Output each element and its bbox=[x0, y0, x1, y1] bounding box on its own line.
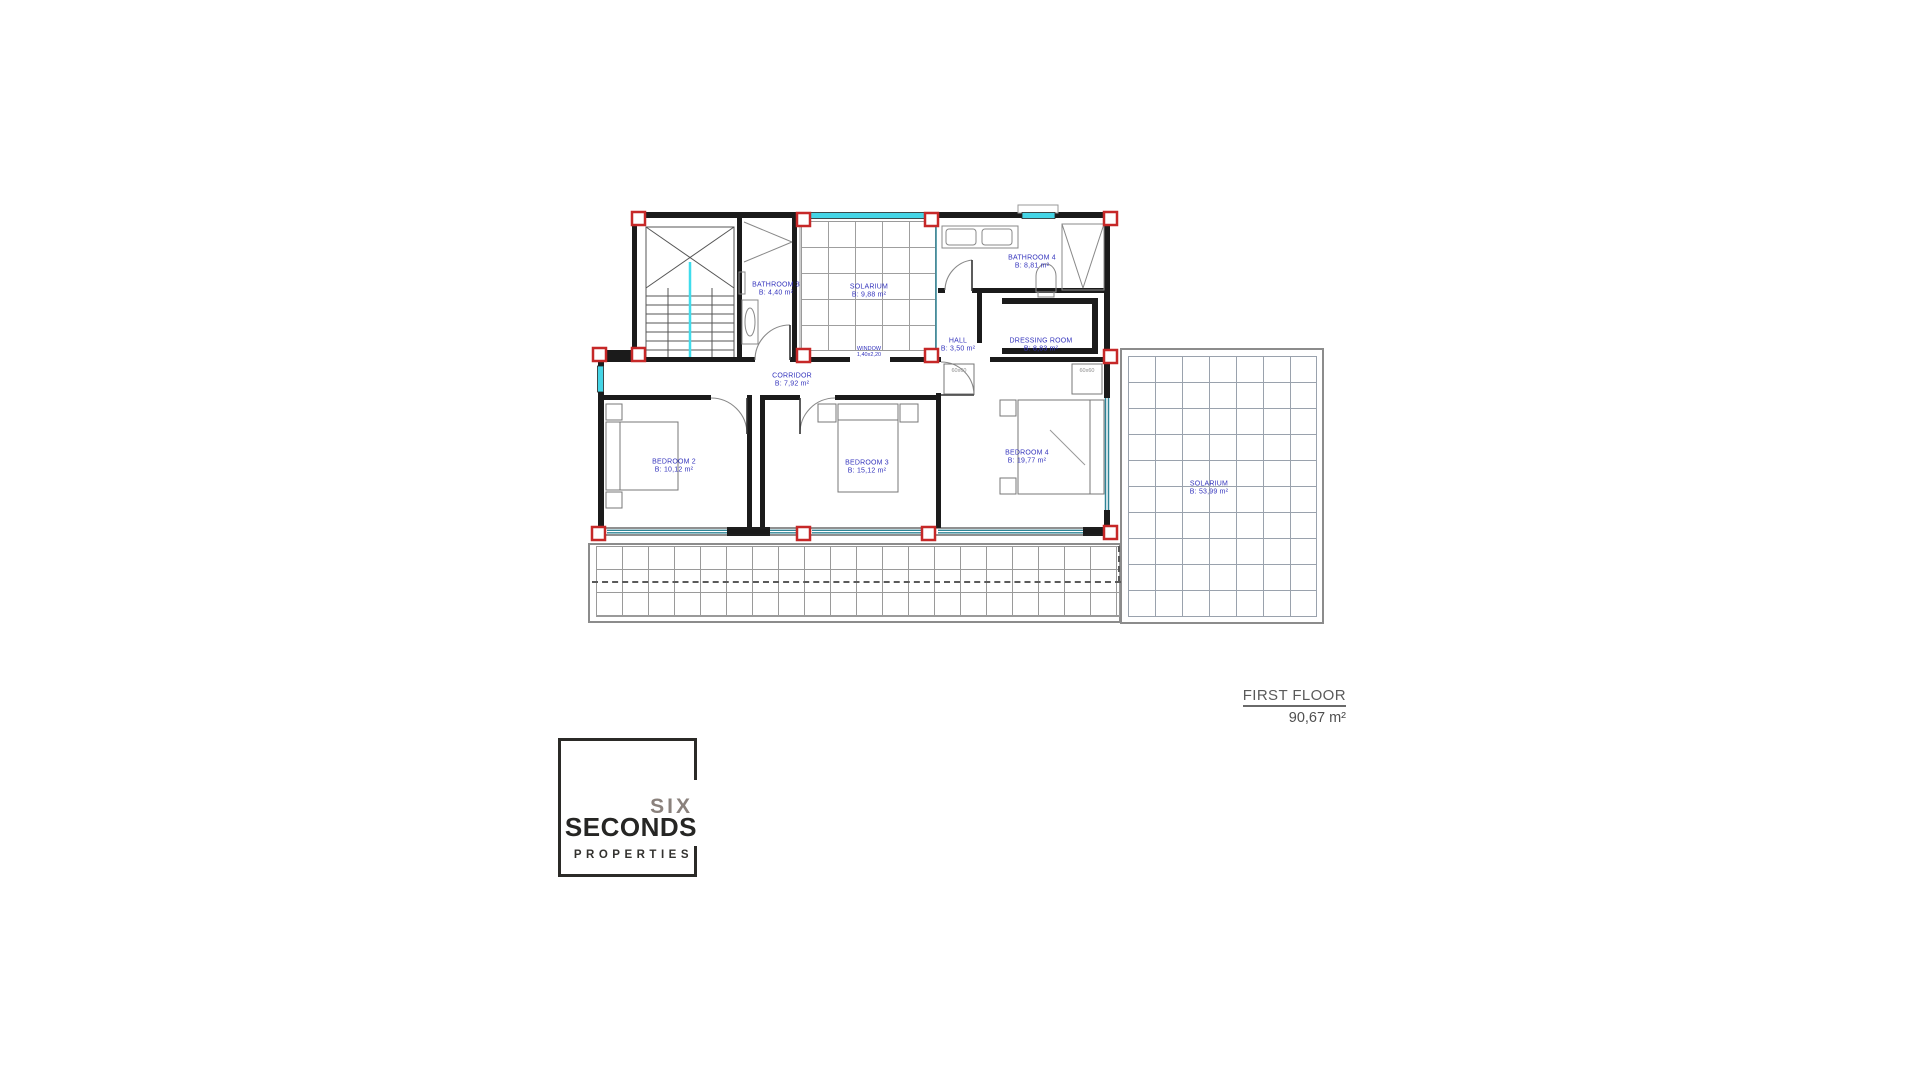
room-label-solarium-top: SOLARIUM B: 9,88 m² bbox=[850, 284, 888, 299]
window-dimension-note: WINDOW 1,40x2,20 bbox=[857, 346, 881, 358]
title-block: FIRST FLOOR 90,67 m² bbox=[1232, 687, 1346, 726]
room-area: B: 8,83 m² bbox=[1010, 345, 1073, 353]
window-note-dim: 1,40x2,20 bbox=[857, 352, 881, 358]
logo-word-properties: PROPERTIES bbox=[574, 849, 693, 861]
room-name: BATHROOM 3 bbox=[752, 282, 800, 290]
logo-frame-top bbox=[558, 738, 697, 741]
room-label-bedroom-3: BEDROOM 3 B: 15,12 m² bbox=[845, 460, 889, 475]
room-area: B: 9,88 m² bbox=[850, 291, 888, 299]
room-name: SOLARIUM bbox=[1190, 481, 1228, 489]
room-area: B: 10,12 m² bbox=[652, 466, 696, 474]
room-name: CORRIDOR bbox=[772, 373, 812, 381]
logo-frame-right-lower bbox=[694, 846, 697, 877]
floor-total-area: 90,67 m² bbox=[1232, 710, 1346, 726]
room-name: BEDROOM 3 bbox=[845, 460, 889, 468]
room-label-bathroom-3: BATHROOM 3 B: 4,40 m² bbox=[752, 282, 800, 297]
room-name: BEDROOM 2 bbox=[652, 459, 696, 467]
room-area: B: 8,81 m² bbox=[1008, 262, 1056, 270]
floor-title: FIRST FLOOR bbox=[1243, 687, 1346, 707]
logo-word-seconds: SECONDS bbox=[565, 812, 697, 843]
closet-size-right: 60x60 bbox=[1080, 368, 1095, 374]
room-name: BEDROOM 4 bbox=[1005, 450, 1049, 458]
room-name: BATHROOM 4 bbox=[1008, 255, 1056, 263]
furniture bbox=[606, 364, 1104, 508]
room-label-bedroom-2: BEDROOM 2 B: 10,12 m² bbox=[652, 459, 696, 474]
room-name: SOLARIUM bbox=[850, 284, 888, 292]
room-label-solarium-right: SOLARIUM B: 53,99 m² bbox=[1190, 481, 1228, 496]
room-label-corridor: CORRIDOR B: 7,92 m² bbox=[772, 373, 812, 388]
room-area: B: 15,12 m² bbox=[845, 467, 889, 475]
room-name: DRESSING ROOM bbox=[1010, 338, 1073, 346]
room-area: B: 3,50 m² bbox=[941, 345, 975, 353]
room-label-bedroom-4: BEDROOM 4 B: 19,77 m² bbox=[1005, 450, 1049, 465]
six-seconds-properties-logo: SIX SECONDS PROPERTIES bbox=[558, 738, 697, 877]
logo-frame-left bbox=[558, 738, 561, 877]
room-name: HALL bbox=[941, 338, 975, 346]
room-label-bathroom-4: BATHROOM 4 B: 8,81 m² bbox=[1008, 255, 1056, 270]
room-label-dressing-room: DRESSING ROOM B: 8,83 m² bbox=[1010, 338, 1073, 353]
room-area: B: 4,40 m² bbox=[752, 289, 800, 297]
closet-size-left: 60x60 bbox=[952, 368, 967, 374]
room-area: B: 53,99 m² bbox=[1190, 488, 1228, 496]
room-area: B: 19,77 m² bbox=[1005, 457, 1049, 465]
floor-plan-page: BATHROOM 3 B: 4,40 m² SOLARIUM B: 9,88 m… bbox=[0, 0, 1920, 1080]
logo-frame-right-upper bbox=[694, 738, 697, 780]
room-label-hall: HALL B: 3,50 m² bbox=[941, 338, 975, 353]
plan-drawing bbox=[0, 0, 1920, 1080]
logo-frame-bottom bbox=[558, 874, 697, 877]
room-area: B: 7,92 m² bbox=[772, 380, 812, 388]
